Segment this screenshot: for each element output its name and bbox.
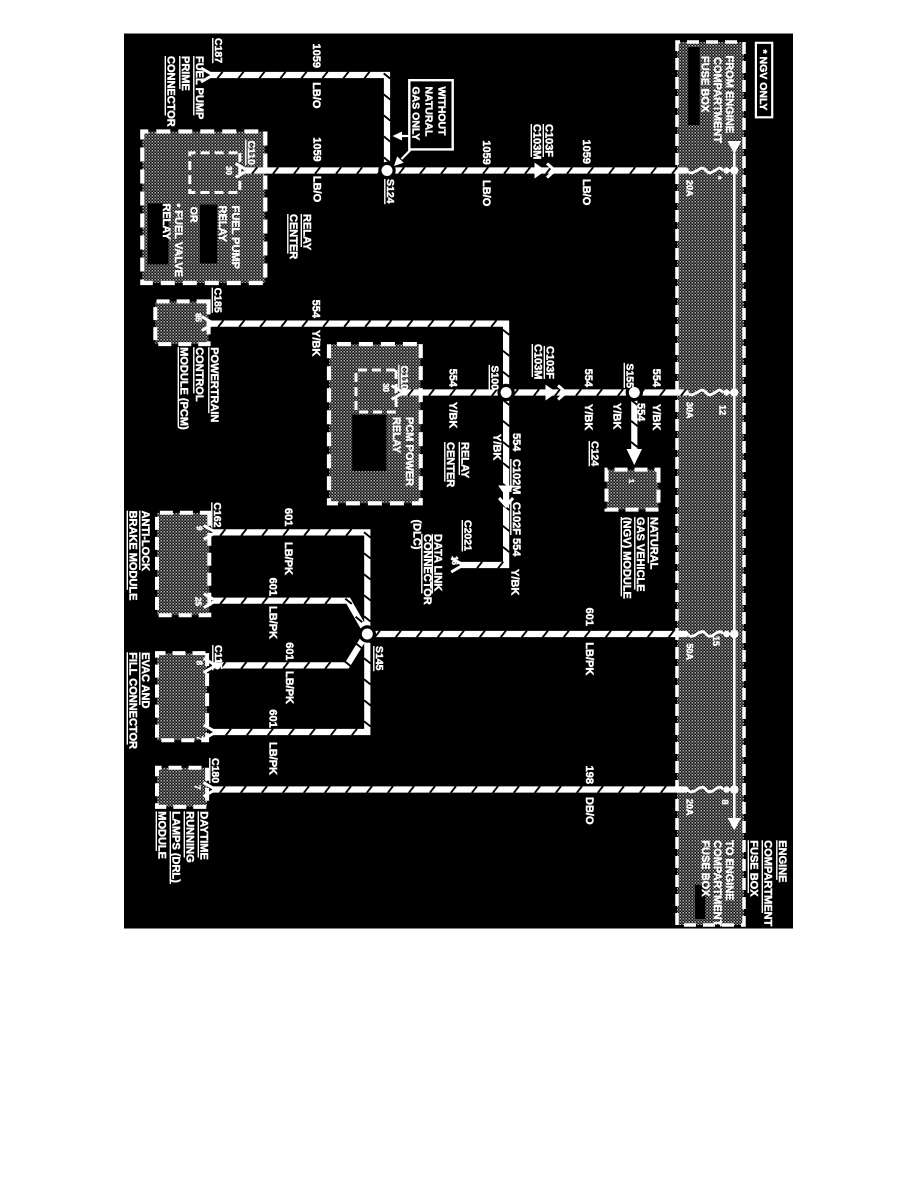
svg-text:30A: 30A	[685, 402, 695, 419]
svg-text:BRAKE MODULE: BRAKE MODULE	[127, 511, 139, 601]
svg-text:GAS VEHICLE: GAS VEHICLE	[634, 517, 646, 592]
svg-text:601: 601	[283, 642, 295, 660]
svg-text:CONNECTOR: CONNECTOR	[421, 534, 433, 605]
svg-text:GAS ONLY: GAS ONLY	[410, 87, 422, 141]
svg-text:WITHOUT: WITHOUT	[436, 87, 448, 137]
svg-text:Y/BK: Y/BK	[650, 404, 662, 430]
svg-text:601: 601	[583, 608, 595, 626]
svg-text:FUSE BOX: FUSE BOX	[699, 840, 711, 897]
svg-text:601: 601	[267, 578, 279, 596]
svg-text:1059: 1059	[480, 140, 492, 164]
svg-text:LAMPS (DRL): LAMPS (DRL)	[170, 811, 182, 883]
svg-text:C115: C115	[212, 645, 224, 670]
svg-text:554: 554	[447, 369, 459, 388]
svg-text:COMPARTMENT: COMPARTMENT	[762, 840, 774, 926]
svg-text:LB/PK: LB/PK	[282, 542, 294, 575]
svg-text:S124: S124	[384, 179, 396, 204]
svg-text:DATA LINK: DATA LINK	[432, 534, 444, 591]
svg-text:C2021: C2021	[462, 520, 474, 551]
svg-text:1059: 1059	[310, 44, 322, 68]
svg-text:OR: OR	[188, 207, 200, 223]
svg-text:NATURAL: NATURAL	[648, 517, 660, 570]
svg-text:C103F: C103F	[544, 346, 556, 379]
svg-text:LB/O: LB/O	[311, 176, 323, 203]
svg-text:S155: S155	[624, 363, 636, 388]
svg-text:C110: C110	[398, 365, 410, 390]
svg-text:COMPARTMENT: COMPARTMENT	[711, 57, 723, 143]
svg-text:POWERTRAIN: POWERTRAIN	[208, 347, 220, 422]
svg-text:*: *	[713, 176, 723, 180]
svg-text:ANTI-LOCK: ANTI-LOCK	[139, 511, 151, 572]
svg-text:C162: C162	[211, 502, 223, 527]
svg-text:554: 554	[510, 538, 522, 557]
svg-text:9: 9	[195, 526, 204, 531]
svg-text:C102F: C102F	[510, 502, 522, 535]
svg-text:C103M: C103M	[532, 344, 544, 379]
svg-text:25: 25	[194, 597, 203, 606]
svg-text:1: 1	[627, 479, 634, 483]
svg-text:30: 30	[381, 383, 390, 392]
svg-text:554: 554	[650, 369, 662, 388]
svg-text:RELAY: RELAY	[160, 203, 172, 240]
svg-text:12: 12	[718, 405, 728, 415]
svg-text:LB/O: LB/O	[580, 179, 592, 206]
svg-text:554: 554	[310, 300, 322, 319]
svg-text:PRIME: PRIME	[179, 56, 191, 91]
svg-text:RELAY: RELAY	[390, 417, 402, 454]
svg-text:DB/O: DB/O	[583, 797, 595, 825]
svg-text:LB/O: LB/O	[480, 180, 492, 207]
svg-text:7: 7	[195, 736, 204, 741]
svg-text:20A: 20A	[685, 799, 695, 816]
svg-text:20A: 20A	[685, 180, 695, 197]
svg-text:Y/BK: Y/BK	[491, 434, 503, 460]
svg-text:8: 8	[720, 800, 730, 805]
svg-text:RELAY: RELAY	[301, 214, 313, 251]
svg-text:554: 554	[510, 433, 522, 452]
svg-text:C180: C180	[209, 758, 221, 783]
svg-text:FROM ENGINE: FROM ENGINE	[723, 56, 735, 134]
svg-text:Y/BK: Y/BK	[509, 569, 521, 595]
svg-text:C187: C187	[212, 38, 224, 63]
svg-text:554: 554	[635, 403, 647, 422]
svg-text:(NGV) MODULE: (NGV) MODULE	[621, 517, 633, 599]
svg-text:LB/PK: LB/PK	[267, 606, 279, 639]
svg-text:16: 16	[450, 556, 459, 565]
svg-text:CENTER: CENTER	[444, 442, 456, 487]
svg-text:EVAC AND: EVAC AND	[139, 652, 151, 708]
svg-text:C102M: C102M	[510, 459, 522, 494]
svg-text:198: 198	[583, 766, 595, 784]
svg-text:C103F: C103F	[543, 124, 555, 157]
svg-text:LB/PK: LB/PK	[267, 742, 279, 775]
svg-text:RUNNING: RUNNING	[184, 811, 196, 862]
svg-text:1059: 1059	[580, 140, 592, 164]
svg-text:CONNECTOR: CONNECTOR	[165, 56, 177, 127]
svg-text:TO ENGINE: TO ENGINE	[723, 840, 735, 900]
svg-text:RELAY: RELAY	[216, 206, 228, 243]
svg-text:7: 7	[193, 785, 202, 790]
svg-text:8: 8	[195, 661, 204, 666]
svg-text:FUSE BOX: FUSE BOX	[748, 840, 760, 897]
svg-text:ENGINE: ENGINE	[776, 840, 788, 882]
svg-text:C110: C110	[245, 140, 257, 165]
svg-text:554: 554	[582, 369, 594, 388]
svg-text:FUEL PUMP: FUEL PUMP	[193, 56, 205, 119]
svg-text:Y/BK: Y/BK	[582, 404, 594, 430]
svg-text:PCM POWER: PCM POWER	[403, 417, 415, 486]
svg-text:MODULE (PCM): MODULE (PCM)	[178, 347, 190, 430]
svg-text:LB/O: LB/O	[310, 82, 322, 109]
svg-text:COMPARTMENT: COMPARTMENT	[711, 840, 723, 926]
svg-text:601: 601	[282, 508, 294, 526]
svg-text:C185: C185	[212, 288, 224, 313]
svg-text:S145: S145	[373, 646, 385, 671]
svg-text:NATURAL: NATURAL	[423, 87, 435, 138]
svg-text:CONTROL: CONTROL	[193, 347, 205, 402]
svg-text:DAYTIME: DAYTIME	[198, 811, 210, 860]
svg-text:LB/PK: LB/PK	[283, 671, 295, 704]
svg-text:S100: S100	[489, 365, 501, 390]
svg-text:FUEL PUMP: FUEL PUMP	[229, 206, 241, 269]
svg-text:* NGV ONLY: * NGV ONLY	[757, 50, 769, 111]
svg-text:Y/BK: Y/BK	[611, 403, 623, 429]
svg-text:• FUEL VALVE: • FUEL VALVE	[172, 203, 184, 277]
svg-text:Y/BK: Y/BK	[310, 330, 322, 356]
svg-text:Y/BK: Y/BK	[447, 402, 459, 428]
svg-text:85: 85	[194, 313, 203, 322]
svg-text:C124: C124	[589, 441, 601, 466]
svg-text:CENTER: CENTER	[287, 214, 299, 259]
svg-text:MODULE: MODULE	[156, 811, 168, 859]
svg-text:LB/PK: LB/PK	[583, 642, 595, 675]
svg-text:50A: 50A	[685, 644, 695, 661]
svg-text:RELAY: RELAY	[459, 442, 471, 479]
svg-text:C103M: C103M	[531, 124, 543, 159]
svg-text:FUSE BOX: FUSE BOX	[699, 56, 711, 113]
svg-text:1059: 1059	[311, 137, 323, 161]
svg-text:FILL CONNECTOR: FILL CONNECTOR	[127, 652, 139, 749]
svg-text:601: 601	[267, 709, 279, 727]
svg-text:30: 30	[224, 166, 233, 175]
svg-text:(DLC): (DLC)	[411, 520, 423, 550]
svg-text:15: 15	[711, 636, 721, 646]
